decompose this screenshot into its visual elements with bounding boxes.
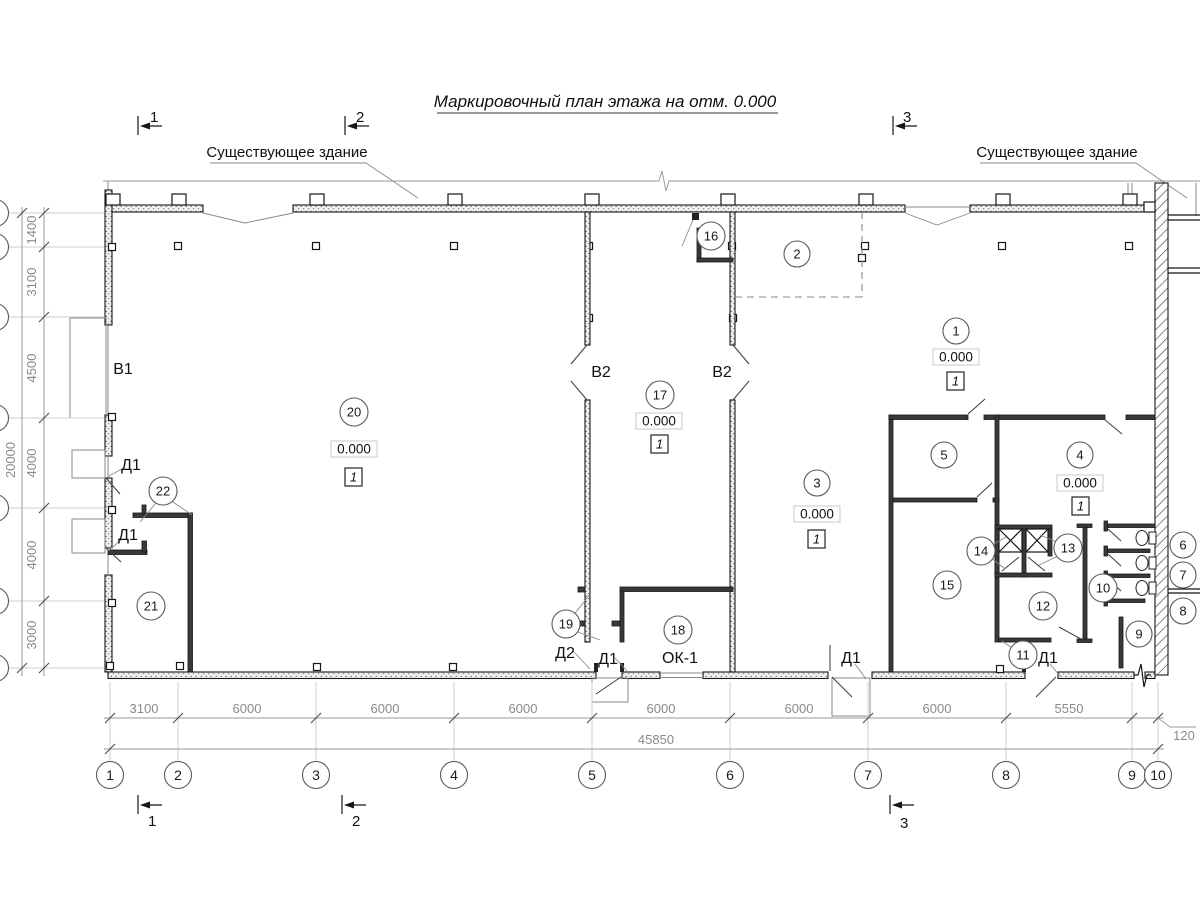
elevation-room-4: 0.000 [1063, 476, 1097, 491]
elevation-room-3: 0.000 [800, 507, 834, 522]
interior-walls [108, 212, 1155, 672]
room-8-number: 8 [1179, 604, 1186, 619]
room-20-number: 20 [347, 405, 361, 420]
dim-total-left: 20000 [3, 442, 18, 478]
dim-left-5: 3000 [24, 621, 39, 650]
toilet-icon [1136, 556, 1156, 571]
dim-offset-120: 120 [1173, 728, 1195, 743]
floor-plan-drawing: Маркировочный план этажа на отм. 0.000 С… [0, 0, 1200, 900]
room-16-number: 16 [704, 229, 718, 244]
door-d2-label: Д2 [555, 645, 575, 662]
existing-building-label-left: Существующее здание [206, 144, 418, 198]
wc-fixtures [1136, 531, 1156, 596]
dim-bottom-4: 6000 [647, 701, 676, 716]
grid-col-3: 3 [312, 767, 320, 783]
section-3-bottom: 3 [900, 815, 908, 832]
toilet-icon [1136, 581, 1156, 596]
dim-left-3: 4000 [24, 449, 39, 478]
room-21-number: 21 [144, 599, 158, 614]
grid-col-8: 8 [1002, 767, 1010, 783]
elevation-room-1: 0.000 [939, 350, 973, 365]
plan-svg: Маркировочный план этажа на отм. 0.000 С… [0, 0, 1200, 900]
dimensions-left: 1400 3100 4500 4000 4000 3000 20000 [0, 200, 104, 682]
section-1-top: 1 [150, 109, 158, 126]
window-ok1-label: ОК-1 [662, 650, 698, 667]
gate-v2-label-right: В2 [712, 364, 732, 381]
section-1-bottom: 1 [148, 813, 156, 830]
section-2-bottom: 2 [352, 813, 360, 830]
room-6-number: 6 [1179, 538, 1186, 553]
dim-bottom-7: 5550 [1055, 701, 1084, 716]
room-7-number: 7 [1179, 568, 1186, 583]
dim-left-4: 4000 [24, 541, 39, 570]
grid-col-1: 1 [106, 767, 114, 783]
room-14-number: 14 [974, 544, 988, 559]
room-12-number: 12 [1036, 599, 1050, 614]
floor-type-room-20: 1 [350, 470, 357, 485]
dim-bottom-1: 6000 [233, 701, 262, 716]
grid-col-7: 7 [864, 767, 872, 783]
door-d1-label-left-lower: Д1 [118, 527, 138, 544]
section-marks-bottom: 1 2 3 [138, 795, 914, 832]
dim-bottom-0: 3100 [130, 701, 159, 716]
existing-building-outline [103, 171, 1200, 593]
dim-left-2: 4500 [24, 354, 39, 383]
door-d1-label-left-upper: Д1 [121, 457, 141, 474]
elevation-room-20: 0.000 [337, 442, 371, 457]
grid-col-4: 4 [450, 767, 458, 783]
room-4-number: 4 [1076, 448, 1083, 463]
room-11-number: 11 [1016, 648, 1030, 663]
dim-left-1: 3100 [24, 268, 39, 297]
grid-col-9: 9 [1128, 767, 1136, 783]
room-2-number: 2 [793, 247, 800, 262]
room-17-number: 17 [653, 388, 667, 403]
gate-v1-label: В1 [113, 361, 133, 378]
room-10-number: 10 [1096, 581, 1110, 596]
elevation-room-17: 0.000 [642, 414, 676, 429]
dim-bottom-3: 6000 [509, 701, 538, 716]
grid-col-5: 5 [588, 767, 596, 783]
section-2-top: 2 [356, 109, 364, 126]
top-columns [106, 194, 1137, 205]
room-9-number: 9 [1135, 627, 1142, 642]
room-13-number: 13 [1061, 541, 1075, 556]
room-15-number: 15 [940, 578, 954, 593]
dim-bottom-6: 6000 [923, 701, 952, 716]
dim-bottom-5: 6000 [785, 701, 814, 716]
room-19-number: 19 [559, 617, 573, 632]
room-22-number: 22 [156, 484, 170, 499]
existing-building-text-left: Существующее здание [206, 144, 367, 161]
grid-col-2: 2 [174, 767, 182, 783]
grid-col-6: 6 [726, 767, 734, 783]
room-5-number: 5 [940, 448, 947, 463]
room-18-number: 18 [671, 623, 685, 638]
dimensions-bottom: 3100 6000 6000 6000 6000 6000 6000 5550 … [104, 682, 1196, 762]
dim-bottom-2: 6000 [371, 701, 400, 716]
room-1-number: 1 [952, 324, 959, 339]
dim-left-0: 1400 [24, 216, 39, 245]
door-d1-label-center: Д1 [598, 651, 618, 668]
floor-type-room-17: 1 [656, 437, 663, 452]
column-markers [107, 243, 1133, 673]
gate-v2-label-left: В2 [591, 364, 611, 381]
section-3-top: 3 [903, 109, 911, 126]
dim-total-bottom: 45850 [638, 732, 674, 747]
toilet-icon [1136, 531, 1156, 546]
door-d1-label-right: Д1 [841, 650, 861, 667]
exterior-walls [105, 183, 1168, 687]
leader-lines [107, 220, 1060, 679]
grid-circles-bottom: 1 2 3 4 5 6 7 8 9 10 [97, 762, 1172, 789]
page-title: Маркировочный план этажа на отм. 0.000 [434, 92, 777, 111]
existing-building-text-right: Существующее здание [976, 144, 1137, 161]
grid-col-10: 10 [1150, 767, 1166, 783]
floor-type-room-3: 1 [813, 532, 820, 547]
floor-type-room-1: 1 [952, 374, 959, 389]
drawing-title: Маркировочный план этажа на отм. 0.000 [434, 92, 778, 113]
floor-type-room-4: 1 [1077, 499, 1084, 514]
door-d1-label-far-right: Д1 [1038, 650, 1058, 667]
room-3-number: 3 [813, 476, 820, 491]
